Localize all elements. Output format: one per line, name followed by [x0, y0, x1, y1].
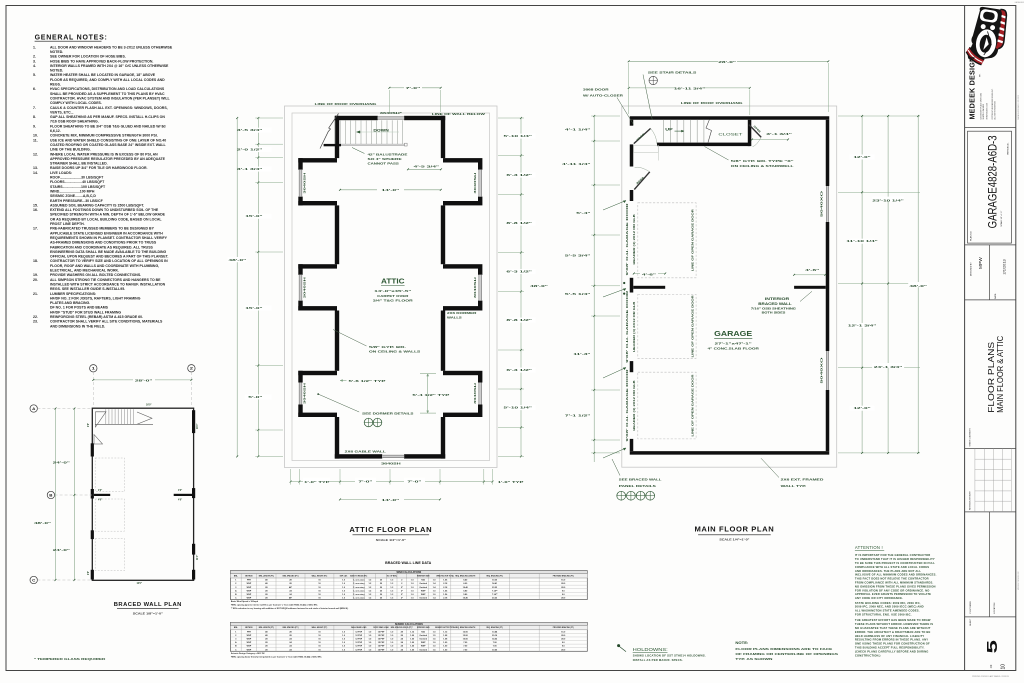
svg-text:APPROVAL EVER GRANTS PERMISSIO: APPROVAL EVER GRANTS PERMISSION TO VIOLA…	[855, 592, 931, 596]
svg-text:REGS. SEE INSTALLER GUIDE S-IN: REGS. SEE INSTALLER GUIDE S-INSTALL95.	[50, 287, 125, 291]
svg-text:FABRICATION AND COORDINATE AS: FABRICATION AND COORDINATE AS REQUIRED. …	[50, 245, 154, 249]
svg-text:HEADER (4) 2X12 OR GLB: HEADER (4) 2X12 OR GLB	[633, 380, 636, 431]
svg-text:FLOOR, ROOF AND WALLS AND COOR: FLOOR, ROOF AND WALLS AND COORDINATE WIT…	[50, 264, 159, 268]
svg-text:OF FRAMING OR CENTERLINE OF OP: OF FRAMING OR CENTERLINE OF OPENINGS	[735, 652, 838, 656]
svg-text:5040XO: 5040XO	[819, 356, 823, 383]
svg-text:DOWN: DOWN	[373, 129, 389, 133]
svg-text:SHALL BE PROVIDED AS A SUPPLEM: SHALL BE PROVIDED AS A SUPPLEMENT TO THI…	[50, 92, 165, 96]
svg-text:12.00: 12.00	[463, 635, 469, 637]
svg-text:PROVIDE WASHERS ON ALL BOLTED: PROVIDE WASHERS ON ALL BOLTED CONNECTION…	[50, 273, 141, 277]
svg-text:48'-0": 48'-0"	[909, 284, 928, 288]
svg-text:18.: 18.	[33, 259, 38, 263]
svg-text:PFH: PFH	[247, 631, 252, 633]
svg-text:Omitted: Omitted	[419, 597, 427, 600]
svg-text:C, one-story: C, one-story	[353, 593, 366, 596]
svg-text:SEISMIC ZONE........A,B,C,D: SEISMIC ZONE........A,B,C,D	[50, 194, 96, 198]
svg-text:WALL HEIGHT (FT.): WALL HEIGHT (FT.)	[312, 626, 328, 629]
svg-text:ON CEILING & STAIRWELL: ON CEILING & STAIRWELL	[731, 164, 794, 168]
svg-text:11'-3": 11'-3"	[573, 352, 591, 356]
svg-text:WSP: WSP	[247, 642, 252, 644]
svg-text:48*: 48*	[289, 586, 292, 589]
svg-text:ATTENTION !: ATTENTION !	[855, 545, 883, 550]
svg-text:2X6 EXT. FRAMED: 2X6 EXT. FRAMED	[781, 477, 825, 481]
svg-text:BWL SPACING (FT.): BWL SPACING (FT.)	[283, 574, 299, 577]
svg-text:NOTED.: NOTED.	[50, 50, 63, 54]
svg-text:SEE BRACED WALL: SEE BRACED WALL	[619, 477, 662, 481]
svg-text:OR AS REQUIRED BY LOCAL BUILDI: OR AS REQUIRED BY LOCAL BUILDING CODE, B…	[50, 217, 162, 221]
svg-text:C, one-story: C, one-story	[353, 582, 366, 585]
svg-text:CAULK & COUNTER FLASH ALL EXT.: CAULK & COUNTER FLASH ALL EXT. OPENINGS:…	[50, 106, 168, 110]
svg-text:SCALE 1/4"=1'-0": SCALE 1/4"=1'-0"	[719, 538, 750, 542]
svg-text:1.: 1.	[33, 45, 36, 49]
svg-text:5'-0": 5'-0"	[248, 395, 263, 399]
svg-text:METHOD: METHOD	[245, 575, 253, 577]
svg-text:2/1/2013: 2/1/2013	[1002, 259, 1007, 274]
svg-text:15 PSF: 15 PSF	[378, 649, 385, 651]
svg-text:WSP: WSP	[421, 646, 426, 648]
svg-text:Omitted: Omitted	[419, 634, 427, 637]
svg-text:VENTS, ETC...: VENTS, ETC...	[50, 110, 74, 114]
svg-text:12 PSF: 12 PSF	[355, 642, 362, 644]
svg-text:12'-0": 12'-0"	[854, 406, 872, 410]
svg-text:3040SH: 3040SH	[302, 382, 306, 404]
svg-text:GARAGE: GARAGE	[714, 331, 752, 338]
svg-text:REQ. BRACING LENGTH: REQ. BRACING LENGTH	[455, 626, 476, 629]
svg-text:8'-8 1/2": 8'-8 1/2"	[506, 318, 533, 322]
svg-text:16.: 16.	[33, 208, 38, 212]
svg-text:SCALE 1/8"=1'-0": SCALE 1/8"=1'-0"	[133, 612, 164, 616]
svg-text:SEISMIC FACTOR TOTAL: SEISMIC FACTOR TOTAL	[435, 626, 455, 629]
svg-text:THE GREATEST EFFORT HAS BEEN M: THE GREATEST EFFORT HAS BEEN MADE TO DRA…	[855, 618, 931, 622]
svg-text:9'6": 9'6"	[88, 423, 90, 427]
svg-text:BWL SPACING SDS D (FT.)*: BWL SPACING SDS D (FT.)*	[391, 626, 413, 629]
svg-text:APPROVED PRESSURE REGULATOR PR: APPROVED PRESSURE REGULATOR PRECEDED BY …	[50, 157, 166, 161]
svg-text:STATE BUILDING CODES: 2009 IRC: STATE BUILDING CODES: 2009 IRC, 2009 IFC…	[855, 601, 921, 605]
svg-text:7.14**: 7.14**	[492, 589, 498, 592]
svg-text:WSP: WSP	[247, 598, 252, 600]
svg-text:MPW: MPW	[978, 257, 984, 269]
svg-text:HF/DF NO. 2 FOR JOISTS, RAFTER: HF/DF NO. 2 FOR JOISTS, RAFTERS, LIGHT F…	[50, 296, 141, 300]
svg-text:SHEET: SHEET	[970, 618, 972, 626]
svg-text:7/16 OSB ROOF SHEATHING.: 7/16 OSB ROOF SHEATHING.	[50, 120, 99, 124]
svg-text:REVISION HISTORY: REVISION HISTORY	[970, 490, 972, 510]
svg-text:FOR STRUCTURAL ENG. USE 2009 I: FOR STRUCTURAL ENG. USE 2009 IBC.	[855, 613, 912, 617]
svg-text:WSP: WSP	[247, 590, 252, 592]
svg-text:10.40: 10.40	[463, 586, 469, 589]
svg-text:AND ORDINANCES. THE PLANS ARE: AND ORDINANCES. THE PLANS ARE NOT ALL	[855, 569, 921, 573]
svg-text:STAIRS...................100 L: STAIRS...................100 LBS/SQFT	[50, 185, 106, 189]
svg-text:7.: 7.	[33, 106, 36, 110]
svg-text:PROVIDED BRACING (FT.): PROVIDED BRACING (FT.)	[553, 574, 575, 577]
svg-text:WSP: WSP	[247, 639, 252, 641]
svg-text:SO 4" SPHERE: SO 4" SPHERE	[368, 157, 402, 161]
svg-text:ON CEILING & WALLS: ON CEILING & WALLS	[369, 350, 420, 354]
svg-text:*BWL spacing ignores interior: *BWL spacing ignores interior wall B as …	[231, 603, 318, 606]
svg-text:LINE OF OPEN GARAGE DOOR: LINE OF OPEN GARAGE DOOR	[692, 374, 695, 436]
svg-text:BRACED WALL LINE DATA: BRACED WALL LINE DATA	[385, 561, 432, 565]
svg-text:REQ. BRACING LENGTH: REQ. BRACING LENGTH	[455, 574, 476, 577]
svg-text:5/8" GYP. BD. TYPE "X": 5/8" GYP. BD. TYPE "X"	[731, 159, 795, 163]
svg-text:2*: 2*	[401, 587, 403, 589]
svg-text:PRINTED 2/1/2013 LAST SAVE: PRINTED 2/1/2013 LAST SAVED: 2/1/2013	[972, 675, 1009, 678]
svg-text:SEATTLE WA 98133: SEATTLE WA 98133	[982, 104, 985, 120]
svg-text:BRACED WALL PLAN: BRACED WALL PLAN	[114, 602, 182, 608]
svg-text:48*: 48*	[289, 597, 292, 600]
svg-text:CONCRETE MIX, MINIMUM COMPRESS: CONCRETE MIX, MINIMUM COMPRESSIVE STRENG…	[50, 134, 158, 138]
svg-text:10.50: 10.50	[492, 649, 498, 651]
svg-text:15 PSF: 15 PSF	[378, 639, 385, 641]
svg-text:ROOF DEAD LOAD: ROOF DEAD LOAD	[373, 626, 389, 629]
svg-text:WSP: WSP	[421, 590, 426, 592]
svg-text:NO. OF BWL: NO. OF BWL	[387, 575, 397, 577]
svg-text:14.52: 14.52	[492, 638, 498, 641]
svg-text:SEE DORMER DETAILS: SEE DORMER DETAILS	[362, 411, 413, 415]
svg-text:48'-0": 48'-0"	[530, 284, 549, 288]
svg-text:STRAINER SHALL BE INSTALLED.: STRAINER SHALL BE INSTALLED.	[50, 162, 108, 166]
svg-text:7'-1 1/2": 7'-1 1/2"	[565, 414, 592, 418]
svg-text:20.: 20.	[33, 278, 38, 282]
svg-text:INTERIOR GWB: INTERIOR GWB	[417, 575, 430, 577]
svg-text:HF/DF "STUD" FOR STUD WALL FRA: HF/DF "STUD" FOR STUD WALL FRAMING	[50, 310, 121, 314]
svg-text:* TEMPERED GLASS REQUIRED: * TEMPERED GLASS REQUIRED	[34, 657, 106, 661]
svg-text:WSP: WSP	[247, 583, 252, 585]
svg-text:BRACED WALL: BRACED WALL	[758, 302, 791, 306]
svg-text:COATED ROOFING OR COATED GLASS: COATED ROOFING OR COATED GLASS BASE 24" …	[50, 143, 167, 147]
svg-text:MAIN FLOOR & ATTIC: MAIN FLOOR & ATTIC	[996, 336, 1005, 413]
svg-text:5'-10 1/4": 5'-10 1/4"	[504, 134, 534, 138]
svg-text:C, one-story: C, one-story	[353, 589, 366, 592]
svg-text:42" BALUSTRADE: 42" BALUSTRADE	[368, 152, 408, 156]
svg-text:BWL SPACING (FT.): BWL SPACING (FT.)	[283, 626, 299, 629]
svg-text:9'X8' O.H. GARAGE DOOR: 9'X8' O.H. GARAGE DOOR	[625, 291, 629, 363]
svg-text:EAVE TO RIDGE (FT.): EAVE TO RIDGE (FT.)	[350, 574, 367, 577]
svg-text:11.: 11.	[33, 138, 38, 142]
svg-text:COPYRIGHT 2013 MEDEEK DESIGN I: COPYRIGHT 2013 MEDEEK DESIGN INC.	[992, 88, 994, 119]
svg-text:3040SH: 3040SH	[473, 382, 477, 404]
svg-text:12'-1 3/4": 12'-1 3/4"	[848, 323, 878, 327]
svg-text:COMPLIANCE WITH ALL STATE AND: COMPLIANCE WITH ALL STATE AND LOCAL CODE…	[855, 565, 929, 569]
svg-text:3040SH: 3040SH	[473, 171, 477, 193]
svg-text:24'-1 3/4": 24'-1 3/4"	[874, 365, 904, 369]
svg-text:HEADER (4) 2X12 OR GLB: HEADER (4) 2X12 OR GLB	[633, 214, 636, 265]
svg-text:GARAGE4828-A6D-3 2/1/2013: GARAGE4828-A6D-3 2/1/2013	[1017, 95, 1020, 120]
svg-text:2009 IPC, 2009 NEC, AND 2009 I: 2009 IPC, 2009 NEC, AND 2009 IECC (WEC) …	[855, 605, 924, 609]
svg-text:TO BE SURE THIS PROJECT IS CON: TO BE SURE THIS PROJECT IS CONSTRUCTED I…	[855, 561, 935, 565]
svg-text:5/8" GYP. BD.: 5/8" GYP. BD.	[369, 345, 406, 349]
svg-text:ELECTRICAL, AND MECHANICAL WOR: ELECTRICAL, AND MECHANICAL WORK.	[50, 269, 119, 273]
svg-text:Basic Wind Speed = 100mph: Basic Wind Speed = 100mph	[231, 601, 259, 603]
svg-text:WIND.....................100 M: WIND.....................100 MPH	[50, 189, 95, 193]
svg-text:15.: 15.	[33, 203, 38, 207]
svg-text:12 PSF: 12 PSF	[355, 631, 362, 633]
svg-text:FLOOR PLANS: FLOOR PLANS	[986, 342, 996, 413]
svg-text:3040SH: 3040SH	[302, 171, 306, 193]
svg-text:DATE:: DATE:	[994, 293, 997, 299]
svg-text:WALL DEAD LOAD: WALL DEAD LOAD	[351, 626, 367, 629]
svg-text:11'-10 1/4": 11'-10 1/4"	[846, 239, 879, 243]
svg-text:12 PSF: 12 PSF	[355, 646, 362, 648]
svg-text:INTERIOR GWB: INTERIOR GWB	[417, 627, 430, 629]
svg-text:FLOOR PLANS DIMENSIONS ARE TO: FLOOR PLANS DIMENSIONS ARE TO FACE	[735, 647, 832, 651]
svg-text:48'-0": 48'-0"	[229, 258, 248, 262]
svg-text:10: 10	[1001, 664, 1007, 670]
svg-text:14.41: 14.41	[492, 582, 498, 585]
svg-text:HVAC SPECIFICATIONS, DISTRIBUT: HVAC SPECIFICATIONS, DISTRIBUTION AND LO…	[50, 87, 165, 91]
svg-text:WSP: WSP	[247, 635, 252, 637]
svg-text:UP: UP	[665, 128, 674, 132]
svg-text:4'-1 1/4": 4'-1 1/4"	[565, 127, 592, 131]
svg-text:LINE OF ROOF OVERHANG: LINE OF ROOF OVERHANG	[315, 102, 378, 106]
svg-text:28'-0": 28'-0"	[135, 379, 154, 383]
svg-text:WWW.MEDEEK.COM: WWW.MEDEEK.COM	[987, 102, 989, 119]
svg-text:4'0": 4'0"	[178, 489, 182, 492]
svg-text:LINE OF OPEN GARAGE DOOR: LINE OF OPEN GARAGE DOOR	[692, 295, 695, 357]
svg-text:CONSTRUCTION.): CONSTRUCTION.)	[855, 653, 881, 657]
svg-text:9.: 9.	[33, 124, 36, 128]
svg-text:WSP: WSP	[247, 594, 252, 596]
svg-text:CUSTOMER: CUSTOMER	[970, 601, 972, 614]
svg-text:FOR VIOLATION OF ANY CODE OR O: FOR VIOLATION OF ANY CODE OR ORDINANCE. …	[855, 588, 930, 592]
svg-text:5'-4 1/2" TYP: 5'-4 1/2" TYP	[412, 393, 449, 397]
svg-text:23.: 23.	[33, 320, 38, 324]
svg-text:10.30: 10.30	[492, 580, 498, 582]
svg-text:PROVIDED BRACING (FT.): PROVIDED BRACING (FT.)	[553, 626, 575, 629]
svg-text:N/A: N/A	[421, 630, 425, 633]
svg-text:PANEL DETAILS: PANEL DETAILS	[619, 484, 656, 488]
svg-text:C, one-story: C, one-story	[353, 579, 366, 582]
svg-text:6.: 6.	[33, 87, 36, 91]
svg-text:SEE OWNER FOR LOCATION OF HOSE: SEE OWNER FOR LOCATION OF HOSE BIBS.	[50, 55, 126, 59]
svg-text:ALL WASHINGTON STATE AMENDED C: ALL WASHINGTON STATE AMENDED CODES.	[855, 609, 920, 613]
svg-text:2X6 GABLE WALL: 2X6 GABLE WALL	[345, 449, 386, 453]
svg-text:IT IS IMPORTANT FOR THE GENERA: IT IS IMPORTANT FOR THE GENERAL CONTRACT…	[855, 553, 931, 557]
svg-text:9'6": 9'6"	[88, 571, 90, 575]
svg-text:6'-3 1/2": 6'-3 1/2"	[506, 173, 533, 177]
svg-text:REGS.: REGS.	[50, 83, 61, 87]
svg-text:AS-FRAMED DIMENSIONS AND CONDI: AS-FRAMED DIMENSIONS AND CONDITIONS PRIO…	[50, 241, 157, 245]
svg-text:C, one-story: C, one-story	[353, 597, 366, 600]
svg-text:VERSION A.1: VERSION A.1	[1007, 142, 1010, 155]
svg-text:BOTH SIDES: BOTH SIDES	[762, 311, 786, 314]
svg-text:WIND FACTOR TOTAL: WIND FACTOR TOTAL	[436, 574, 454, 577]
svg-text:8.: 8.	[33, 115, 36, 119]
svg-text:TYP. AS SHOWN: TYP. AS SHOWN	[735, 657, 772, 661]
svg-text:** 80% reduction in req. braci: ** 80% reduction in req. bracing with ad…	[231, 607, 349, 610]
svg-text:3640SH: 3640SH	[381, 462, 402, 466]
svg-text:THIS FACT DOES NOT RELIEVE THE: THIS FACT DOES NOT RELIEVE THE CONTRACTO…	[855, 577, 929, 581]
svg-text:LINE OF OPEN GARAGE DOOR: LINE OF OPEN GARAGE DOOR	[692, 209, 695, 271]
svg-text:21.: 21.	[33, 292, 38, 296]
svg-text:5: 5	[985, 640, 1001, 654]
svg-text:12.00: 12.00	[463, 631, 469, 633]
svg-text:2: 2	[190, 367, 193, 371]
svg-text:USE ICE AND WATER SHIELD CONSI: USE ICE AND WATER SHIELD CONSISTING OF O…	[50, 138, 166, 142]
svg-text:14'-0": 14'-0"	[382, 498, 401, 502]
svg-text:W/ AUTO-CLOSER: W/ AUTO-CLOSER	[583, 93, 624, 97]
svg-text:ATTIC FLOOR PLAN: ATTIC FLOOR PLAN	[349, 525, 432, 534]
svg-text:COMPLY WITH LOCAL CODES.: COMPLY WITH LOCAL CODES.	[50, 101, 102, 105]
svg-text:12 PSF: 12 PSF	[355, 635, 362, 637]
svg-text:4'-5 3/4": 4'-5 3/4"	[414, 165, 441, 169]
svg-text:27'-1"x47'-1": 27'-1"x47'-1"	[715, 342, 753, 346]
svg-text:AND DIMENSIONS IN THE FIELD.: AND DIMENSIONS IN THE FIELD.	[50, 324, 105, 328]
svg-text:APPLICABLE STATE LICENSED ENGI: APPLICABLE STATE LICENSED ENGINEER IN AC…	[50, 231, 163, 235]
svg-text:ASSUMED SOIL BEARING CAPACITY: ASSUMED SOIL BEARING CAPACITY IS 1500 LB…	[50, 203, 144, 207]
svg-text:PFH: PFH	[247, 580, 252, 582]
svg-text:EXTEND ALL FOOTINGS DOWN TO UN: EXTEND ALL FOOTINGS DOWN TO UNDISTURBED …	[50, 208, 159, 212]
svg-text:10.50: 10.50	[463, 639, 469, 641]
svg-text:PLATES AND BRACING.: PLATES AND BRACING.	[50, 301, 90, 305]
svg-text:2.: 2.	[33, 55, 36, 59]
svg-text:BWL LENGTH (FT.): BWL LENGTH (FT.)	[259, 627, 275, 629]
svg-text:23'-10 1/4": 23'-10 1/4"	[872, 198, 905, 202]
svg-text:RESULTING FROM ERRORS IN THESE: RESULTING FROM ERRORS IN THESE PLANS. AN…	[855, 638, 928, 642]
svg-text:4" CONC.SLAB FLOOR: 4" CONC.SLAB FLOOR	[708, 347, 761, 351]
svg-text:3.: 3.	[33, 59, 36, 63]
svg-text:WSP: WSP	[247, 587, 252, 589]
svg-text:16'0": 16'0"	[197, 424, 199, 429]
svg-text:2*: 2*	[401, 598, 403, 600]
svg-text:GAP ALL SHEATHING AS PER MANUF: GAP ALL SHEATHING AS PER MANUF. SPECS. I…	[50, 115, 165, 119]
svg-text:SEE STAIR DETAILS: SEE STAIR DETAILS	[648, 71, 696, 75]
svg-text:BWL LENGTH (FT.): BWL LENGTH (FT.)	[259, 575, 275, 577]
svg-text:ATTIC: ATTIC	[381, 278, 405, 285]
svg-text:LUMBER SPECIFICATIONS:: LUMBER SPECIFICATIONS:	[50, 292, 96, 296]
svg-text:7'-0": 7'-0"	[407, 480, 422, 484]
svg-text:5040XO: 5040XO	[819, 190, 823, 217]
svg-text:1'-0" TYP: 1'-0" TYP	[304, 480, 330, 484]
svg-text:15 PSF: 15 PSF	[378, 646, 385, 648]
svg-text:LINE OF THE BUILDING.: LINE OF THE BUILDING.	[50, 148, 91, 152]
svg-text:3040SH: 3040SH	[302, 276, 306, 298]
svg-text:6'-3 1/2": 6'-3 1/2"	[506, 270, 533, 274]
svg-text:3640SH*: 3640SH*	[380, 111, 403, 115]
svg-text:METHOD: METHOD	[245, 627, 253, 629]
svg-text:REINFORCING STEEL (REBAR) ASTM: REINFORCING STEEL (REBAR) ASTM A-615 GRA…	[50, 315, 143, 319]
svg-text:12 PSF: 12 PSF	[355, 649, 362, 651]
svg-text:GARAGE4828-A6D-3: GARAGE4828-A6D-3	[985, 135, 999, 228]
svg-text:3/4" T&G FLOOR: 3/4" T&G FLOOR	[373, 299, 414, 303]
svg-text:EARTH PRESSURE...30 LBS/CF: EARTH PRESSURE...30 LBS/CF	[50, 199, 104, 203]
svg-text:ONE USING THESE PLANS FOR CONS: ONE USING THESE PLANS FOR CONSTRUCTION O…	[855, 642, 930, 646]
svg-text:1'-0" TYP: 1'-0" TYP	[498, 480, 524, 484]
svg-text:Omitted: Omitted	[419, 638, 427, 641]
svg-text:3040SH: 3040SH	[473, 276, 477, 298]
svg-text:FROST LINE DEPTH.: FROST LINE DEPTH.	[50, 222, 85, 226]
svg-text:GARAGE4828-A6D-3 ARCHIVED 2/: GARAGE4828-A6D-3 ARCHIVED 2/1/2013	[1015, 1, 1024, 4]
svg-text:SCALE 1/4"=1'-0": SCALE 1/4"=1'-0"	[376, 538, 407, 542]
svg-text:PRE-FABRICATED TRUSSED MEMBERS: PRE-FABRICATED TRUSSED MEMBERS TO BE DES…	[50, 227, 155, 231]
svg-text:ERROR. THE ARCHITECT & DRAFTSM: ERROR. THE ARCHITECT & DRAFTSMAN ARE TO …	[855, 630, 931, 634]
svg-text:14'-0"x45'-5": 14'-0"x45'-5"	[374, 289, 412, 293]
svg-text:NO OMISSION FROM THESE PLANS G: NO OMISSION FROM THESE PLANS GIVES PERMI…	[855, 584, 936, 588]
svg-text:WATER HEATER SHALL BE LOCATED: WATER HEATER SHALL BE LOCATED IN GARAGE,…	[50, 73, 156, 77]
svg-text:TO UNDERSTAND THAT IT IS HIS/H: TO UNDERSTAND THAT IT IS HIS/HER RESPONS…	[855, 557, 935, 561]
svg-text:CANNOT PASS: CANNOT PASS	[368, 161, 399, 165]
svg-text:NO GUARANTEE THAT THESE PLANS: NO GUARANTEE THAT THESE PLANS ARE WITHOU…	[855, 626, 931, 630]
svg-text:GENERAL NOTES:: GENERAL NOTES:	[35, 35, 108, 42]
svg-text:SHEET CONTENTS: SHEET CONTENTS	[970, 428, 972, 447]
svg-text:4'0": 4'0"	[178, 499, 182, 502]
svg-text:ENGINEERING DATA SHALL BE MADE: ENGINEERING DATA SHALL BE MADE AVAILABLE…	[50, 250, 166, 254]
svg-text:7.14**: 7.14**	[492, 593, 498, 596]
svg-text:FLOORS..................40 LBS: FLOORS..................40 LBS/SQFT	[50, 180, 105, 184]
svg-text:CLOSET: CLOSET	[718, 131, 743, 136]
svg-text:3'-5 3/4": 3'-5 3/4"	[237, 128, 264, 132]
svg-text:*BWL spacing factor linearly i: *BWL spacing factor linearly interpolate…	[231, 655, 323, 658]
svg-text:5.: 5.	[33, 73, 36, 77]
svg-text:6'-3 1/2": 6'-3 1/2"	[506, 368, 533, 372]
svg-text:SHOWS LOCATION OF SST STHD14 H: SHOWS LOCATION OF SST STHD14 HOLDOWNS.	[633, 654, 706, 658]
svg-text:INSTALLED WITH STRICT ACCORDAN: INSTALLED WITH STRICT ACCORDANCE TO MANU…	[50, 282, 166, 286]
svg-text:14.: 14.	[33, 171, 38, 175]
svg-text:BWL: BWL	[234, 627, 238, 629]
svg-text:4'-6": 4'-6"	[642, 272, 657, 276]
svg-text:Seismic Design Category = SDC: Seismic Design Category = SDC D2	[231, 652, 266, 655]
svg-text:5'-6 1/2" TYP: 5'-6 1/2" TYP	[349, 379, 386, 383]
svg-text:3068 DOOR: 3068 DOOR	[583, 88, 610, 92]
svg-text:PH.: PH.	[980, 73, 982, 77]
svg-text:1: 1	[92, 367, 95, 371]
svg-text:HEADER (4) 2X12 OR GLB: HEADER (4) 2X12 OR GLB	[633, 301, 636, 352]
svg-text:9'X8' O.H. GARAGE DOOR: 9'X8' O.H. GARAGE DOOR	[625, 203, 629, 275]
svg-text:WALL HEIGHT (FT.): WALL HEIGHT (FT.)	[312, 574, 328, 577]
svg-text:INCLUSIVE OF ALL MINIMUM CODES: INCLUSIVE OF ALL MINIMUM CODES AND ORDIN…	[855, 573, 937, 577]
svg-text:16'0": 16'0"	[137, 583, 142, 585]
svg-text:INTERIOR WALLS FRAMED WITH 2X4: INTERIOR WALLS FRAMED WITH 2X4 @ 16" O/C…	[50, 64, 169, 68]
svg-text:5'-5 3/4": 5'-5 3/4"	[565, 254, 592, 258]
svg-text:ALL DOOR AND WINDOW HEADERS TO: ALL DOOR AND WINDOW HEADERS TO BE 3-2X12…	[50, 45, 173, 49]
svg-text:10.: 10.	[33, 134, 38, 138]
svg-text:WSP: WSP	[247, 649, 252, 651]
svg-text:DESIGNED BY:: DESIGNED BY:	[971, 262, 973, 277]
svg-text:7'-0": 7'-0"	[406, 86, 422, 90]
svg-text:15 PSF: 15 PSF	[378, 635, 385, 637]
svg-text:2'-0 1/2": 2'-0 1/2"	[237, 148, 264, 152]
svg-text:INSTALL AS PER MANUF. SPECS.: INSTALL AS PER MANUF. SPECS.	[633, 658, 683, 662]
svg-text:WALL TYP.: WALL TYP.	[781, 484, 807, 488]
svg-text:NOTED.: NOTED.	[50, 69, 63, 73]
svg-text:WSP: WSP	[247, 646, 252, 648]
svg-text:MAIN FLOOR PLAN: MAIN FLOOR PLAN	[694, 525, 774, 534]
svg-text:THIS BUILDING ACCEPT FULL RESP: THIS BUILDING ACCEPT FULL RESPONSIBILITY…	[855, 646, 925, 650]
svg-text:BWL: BWL	[234, 575, 238, 577]
svg-text:16'-11 3/4": 16'-11 3/4"	[674, 86, 707, 90]
svg-text:2X6 DORMER: 2X6 DORMER	[447, 311, 478, 315]
svg-text:MEDEEK DESIGN INC.: MEDEEK DESIGN INC.	[1018, 570, 1020, 590]
svg-text:24'-0": 24'-0"	[53, 548, 71, 552]
svg-text:HOLDOWNS:: HOLDOWNS:	[633, 647, 668, 652]
svg-text:15'-0": 15'-0"	[245, 306, 263, 310]
svg-text:17.: 17.	[33, 227, 38, 231]
svg-text:13.44: 13.44	[492, 630, 498, 633]
svg-text:12.: 12.	[33, 152, 38, 156]
svg-text:HELD HARMLESS OF ANY FINANCIAL: HELD HARMLESS OF ANY FINANCIAL LIABILITY	[855, 634, 924, 638]
svg-text:FROM COMPLIANCE WITH ALL MINIM: FROM COMPLIANCE WITH ALL MINIMUM STANDAR…	[855, 581, 934, 585]
svg-text:REQ. BRACING (FT.): REQ. BRACING (FT.)	[486, 626, 503, 629]
svg-text:FLOOR AS REQUIRED, AND COMPLY: FLOOR AS REQUIRED, AND COMPLY WITH ALL L…	[50, 78, 165, 82]
svg-text:4'0": 4'0"	[98, 489, 102, 492]
svg-text:NOTE:: NOTE:	[735, 641, 748, 645]
svg-text:14'-0": 14'-0"	[382, 188, 401, 192]
svg-text:WSP: WSP	[421, 642, 426, 644]
svg-text:DF NO. 1 FOR POSTS AND BEAMS: DF NO. 1 FOR POSTS AND BEAMS	[50, 306, 109, 310]
svg-text:EXP. CAT.: EXP. CAT.	[340, 574, 348, 577]
svg-text:4'0": 4'0"	[98, 499, 102, 502]
svg-text:LINE OF ROOF OVERHANG: LINE OF ROOF OVERHANG	[681, 101, 744, 105]
svg-text:RAISE DOORS UP 3/4" FOR TILE O: RAISE DOORS UP 3/4" FOR TILE OR HARDWOOD…	[50, 166, 147, 170]
svg-text:22.: 22.	[33, 315, 38, 319]
